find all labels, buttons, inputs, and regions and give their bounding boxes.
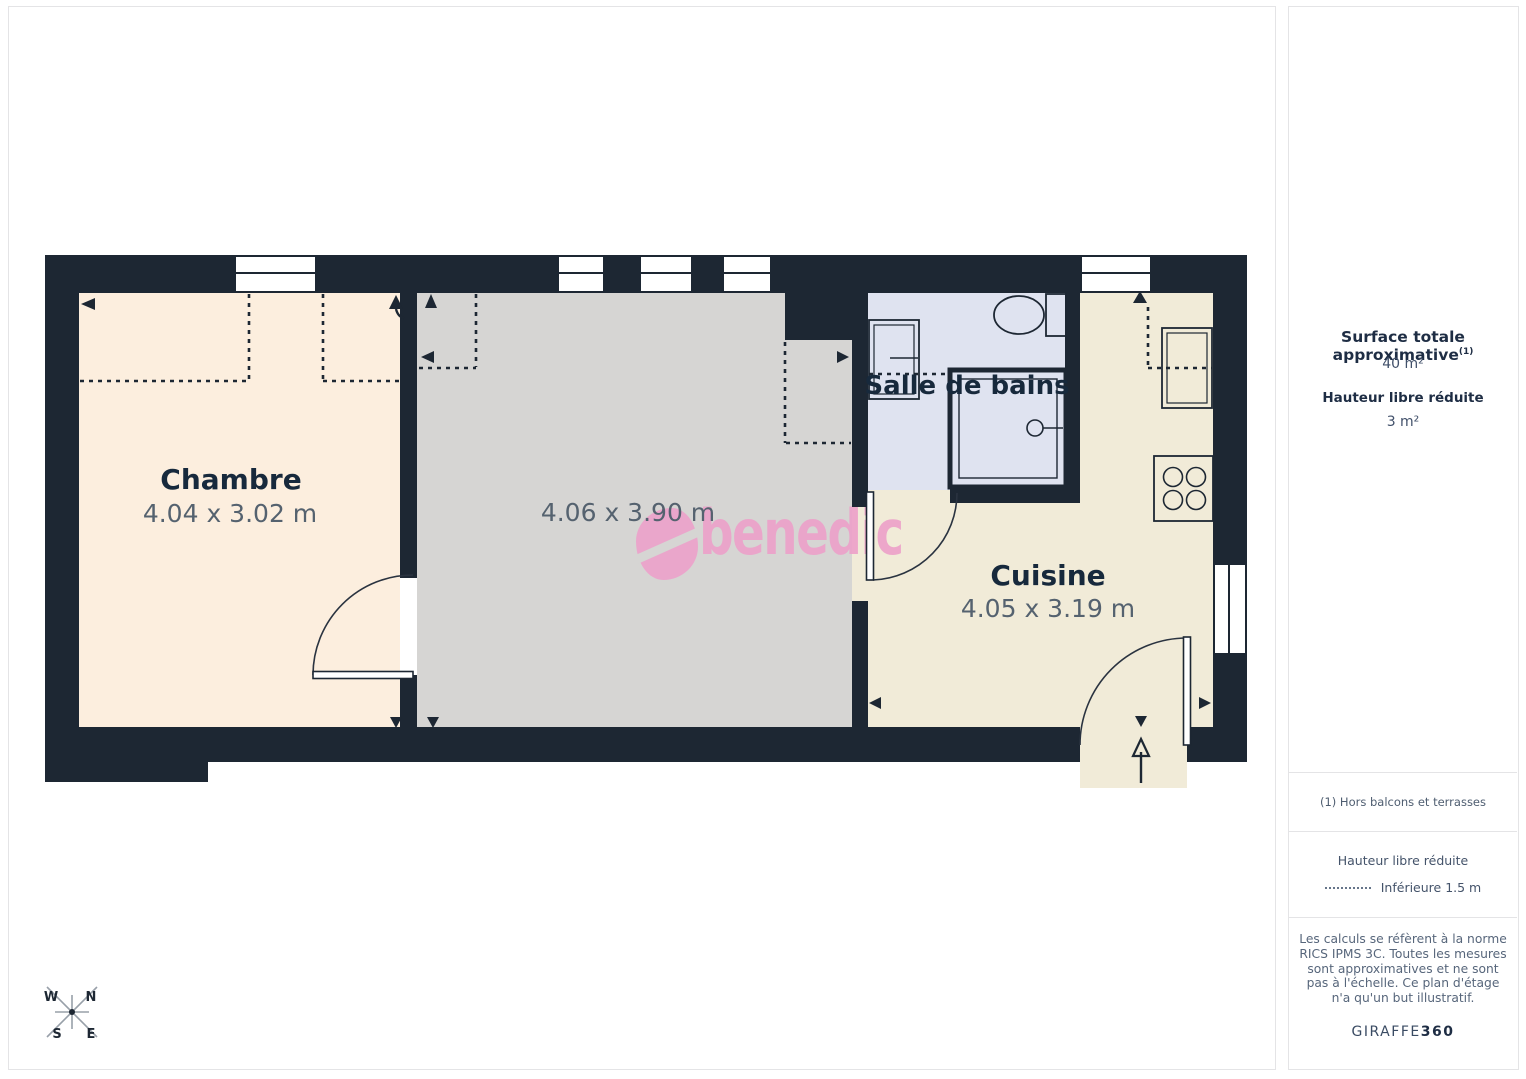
window-cuisine-top [1080, 255, 1152, 293]
legend-row: Inférieure 1.5 m [1293, 877, 1513, 896]
reduced-height-value: 3 m² [1293, 414, 1513, 430]
sejour-floor-top [417, 293, 785, 340]
wall-mid-lower [852, 601, 868, 727]
wall-under-shower [950, 487, 1080, 503]
wall-bottom [208, 727, 1080, 762]
disclaimer-text: Les calculs se réfèrent à la norme RICS … [1298, 932, 1508, 1006]
wall-right [1213, 255, 1247, 762]
window-chambre [234, 255, 317, 293]
legend-item-label: Inférieure 1.5 m [1381, 880, 1481, 895]
cuisine-dims: 4.05 x 3.19 m [928, 594, 1168, 623]
wall-chambre-lower [400, 675, 417, 727]
footnote-text: (1) Hors balcons et terrasses [1293, 795, 1513, 809]
wall-chambre-upper [400, 293, 417, 578]
chambre-dims: 4.04 x 3.02 m [110, 499, 350, 528]
cuisine-label: Cuisine [928, 559, 1168, 592]
sejour-dims: 4.06 x 3.90 m [508, 498, 748, 527]
wall-sejour-notch [785, 293, 868, 340]
wall-bottom-left-block [45, 727, 208, 782]
window-sejour-2 [639, 255, 693, 293]
window-cuisine-right [1213, 563, 1247, 655]
sidebar-divider [1289, 917, 1517, 918]
chambre-label: Chambre [111, 463, 351, 496]
giraffe360-brand: GIRAFFE360 [1293, 1024, 1513, 1040]
sidebar-divider [1289, 772, 1517, 773]
info-sidebar-panel [1288, 6, 1519, 1070]
sidebar-divider [1289, 831, 1517, 832]
surface-total-value: 40 m² [1293, 356, 1513, 372]
legend-title: Hauteur libre réduite [1293, 853, 1513, 868]
window-sejour-1 [557, 255, 605, 293]
wall-mid-upper [852, 340, 868, 507]
entrance-threshold-floor [1080, 728, 1187, 788]
wall-left [45, 255, 79, 782]
bains-label: Salle de bains [847, 371, 1087, 401]
dotted-line-sample [1325, 887, 1371, 889]
window-sejour-3 [722, 255, 772, 293]
floorplan-page: benedic [0, 0, 1526, 1079]
reduced-height-title: Hauteur libre réduite [1293, 390, 1513, 406]
